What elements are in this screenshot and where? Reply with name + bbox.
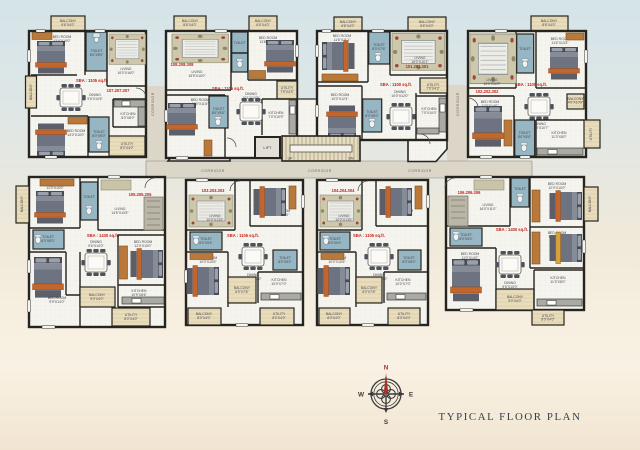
svg-text:TOILET8'0"X5'0": TOILET8'0"X5'0" [518,131,532,139]
svg-text:SBA : 1105 sq.ft.: SBA : 1105 sq.ft. [227,233,259,238]
svg-text:102.202.302: 102.202.302 [476,89,499,94]
svg-text:BED ROOM12'0"X10'0": BED ROOM12'0"X10'0" [548,182,567,190]
svg-text:UP: UP [288,157,293,161]
svg-text:108.208.308: 108.208.308 [171,62,194,67]
svg-text:UTILITY7'9"X4'3": UTILITY7'9"X4'3" [280,86,294,94]
svg-text:TOILET8'0"X5'4": TOILET8'0"X5'4" [328,237,342,245]
svg-text:107.207.307: 107.207.307 [107,88,130,93]
svg-text:KITCHEN11'3"X8'0": KITCHEN11'3"X8'0" [550,276,566,284]
svg-text:103.203.303: 103.203.303 [202,188,225,193]
svg-text:TOILET6'0"X8'0": TOILET6'0"X8'0" [90,49,104,57]
svg-text:SBA : 1100 sq.ft.: SBA : 1100 sq.ft. [380,82,412,87]
svg-text:KITCHEN10'9"X8'6": KITCHEN10'9"X8'6" [131,289,147,297]
svg-text:W: W [358,392,365,399]
svg-text:BALCONY6'6"X4'0": BALCONY6'6"X4'0" [255,19,272,27]
svg-text:TOILET8'0"X5'4": TOILET8'0"X5'4" [459,233,473,241]
svg-text:SBA : 1105 sq.ft.: SBA : 1105 sq.ft. [353,233,385,238]
svg-text:BED:ROOM9'9"X14'0": BED:ROOM9'9"X14'0" [48,296,67,304]
svg-text:TOILET8'0"X7'6": TOILET8'0"X7'6" [372,43,386,51]
svg-text:BALCONY6'0"X7'6": BALCONY6'0"X7'6" [234,286,251,294]
svg-text:TOILET8'0"X5'0": TOILET8'0"X5'0" [92,130,106,138]
svg-text:CORRIDOR: CORRIDOR [408,169,432,173]
svg-text:N: N [384,365,389,372]
svg-text:TOILET8'0"X5'4": TOILET8'0"X5'4" [199,237,213,245]
svg-text:BALCONY8'6"X4'0": BALCONY8'6"X4'0" [182,19,199,27]
svg-text:UTILITY8'0"X4'0": UTILITY8'0"X4'0" [120,142,134,150]
svg-text:KITCHEN7'0"X10'9": KITCHEN7'0"X10'9" [268,111,284,119]
svg-text:UTILITY7'9"X4'3": UTILITY7'9"X4'3" [426,83,440,91]
svg-text:BALCONY9'0"X4'0": BALCONY9'0"X4'0" [507,295,524,303]
svg-text:BED ROOM11'0"X14'0": BED ROOM11'0"X14'0" [461,252,480,260]
svg-text:BALCONY9'0"X4'0": BALCONY9'0"X4'0" [89,293,106,301]
svg-text:BALCONY6'6"X4'0": BALCONY6'6"X4'0" [60,19,77,27]
svg-text:CORRIDOR: CORRIDOR [151,92,155,116]
svg-text:BALCONY: BALCONY [588,195,592,212]
svg-text:BED ROOM10'0"X12'4": BED ROOM10'0"X12'4" [331,93,350,101]
svg-text:BED ROOM14'0"X10'0": BED ROOM14'0"X10'0" [67,129,86,137]
svg-text:SBA : 1430 sq.ft.: SBA : 1430 sq.ft. [87,233,119,238]
svg-text:TOILET: TOILET [514,187,526,191]
svg-text:SBA : 1105 sq.ft.: SBA : 1105 sq.ft. [212,86,244,91]
svg-text:KITCHEN10'0"X7'0": KITCHEN10'0"X7'0" [395,278,411,286]
svg-text:TOILET8'0"X5'0": TOILET8'0"X5'0" [212,107,226,115]
svg-text:UTILITY8'0"X4'0": UTILITY8'0"X4'0" [124,313,138,321]
svg-text:104.204.304: 104.204.304 [332,188,355,193]
svg-text:BED ROOM12'0"X10'0": BED ROOM12'0"X10'0" [134,240,153,248]
svg-text:106.206.306: 106.206.306 [458,190,481,195]
svg-text:TOILET: TOILET [519,47,531,51]
svg-text:TOILET: TOILET [234,41,246,45]
svg-text:TOILET: TOILET [83,195,95,199]
svg-text:TYPICAL FLOOR PLAN: TYPICAL FLOOR PLAN [439,411,582,423]
svg-text:CORRIDOR: CORRIDOR [201,169,225,173]
svg-text:UTILITY: UTILITY [589,127,593,140]
svg-text:BALCONY6'0"X7'6": BALCONY6'0"X7'6" [361,286,378,294]
svg-text:TOILET8'0"X5'0": TOILET8'0"X5'0" [365,110,379,118]
svg-text:UTILITY8'0"X4'0": UTILITY8'0"X4'0" [272,312,286,320]
svg-text:UTILITY8'0"X4'0": UTILITY8'0"X4'0" [397,312,411,320]
svg-text:BALCONY8'0"X4'0": BALCONY8'0"X4'0" [326,312,343,320]
svg-text:TOILET8'0"X5'0": TOILET8'0"X5'0" [278,256,292,264]
svg-text:101.201.301: 101.201.301 [406,64,429,69]
svg-text:E: E [409,392,414,399]
svg-text:BALCONY8'6"X4'0": BALCONY8'6"X4'0" [541,19,558,27]
svg-text:TOILET8'0"X5'0": TOILET8'0"X5'0" [402,256,416,264]
svg-text:SBA : 1400 sq.ft.: SBA : 1400 sq.ft. [496,227,528,232]
svg-text:UTILITY8'0"X4'0": UTILITY8'0"X4'0" [541,314,555,322]
svg-text:LIFT: LIFT [263,145,272,150]
svg-text:S: S [384,419,389,426]
svg-text:KITCHEN8'0"X8'0": KITCHEN8'0"X8'0" [121,112,136,120]
svg-text:SBA : 1100 sq.ft.: SBA : 1100 sq.ft. [515,82,547,87]
svg-text:DN: DN [349,157,354,161]
svg-text:KITCHEN7'0"X10'0": KITCHEN7'0"X10'0" [421,107,437,115]
svg-text:KITCHEN11'3"X8'0": KITCHEN11'3"X8'0" [551,131,567,139]
svg-text:BALCONY4'0"X10'9": BALCONY4'0"X10'9" [567,97,584,105]
svg-text:CORRIDOR: CORRIDOR [456,92,460,116]
svg-text:BALCONY6'6"X4'0": BALCONY6'6"X4'0" [340,20,357,28]
svg-text:BED ROOM11'6"X11'1": BED ROOM11'6"X11'1" [333,34,352,42]
svg-text:TOILET8'0"X5'0": TOILET8'0"X5'0" [41,235,55,243]
svg-text:CORRIDOR: CORRIDOR [308,169,332,173]
svg-text:BALCONY: BALCONY [29,83,33,100]
svg-text:KITCHEN10'0"X7'0": KITCHEN10'0"X7'0" [271,278,287,286]
svg-text:105.205.305: 105.205.305 [129,192,152,197]
svg-text:BALCONY: BALCONY [20,195,24,212]
svg-text:SBA : 1105 sq.ft.: SBA : 1105 sq.ft. [76,78,108,83]
svg-text:BALCONY8'0"X4'0": BALCONY8'0"X4'0" [196,312,213,320]
svg-text:BALCONY8'6"X4'0": BALCONY8'6"X4'0" [419,20,436,28]
